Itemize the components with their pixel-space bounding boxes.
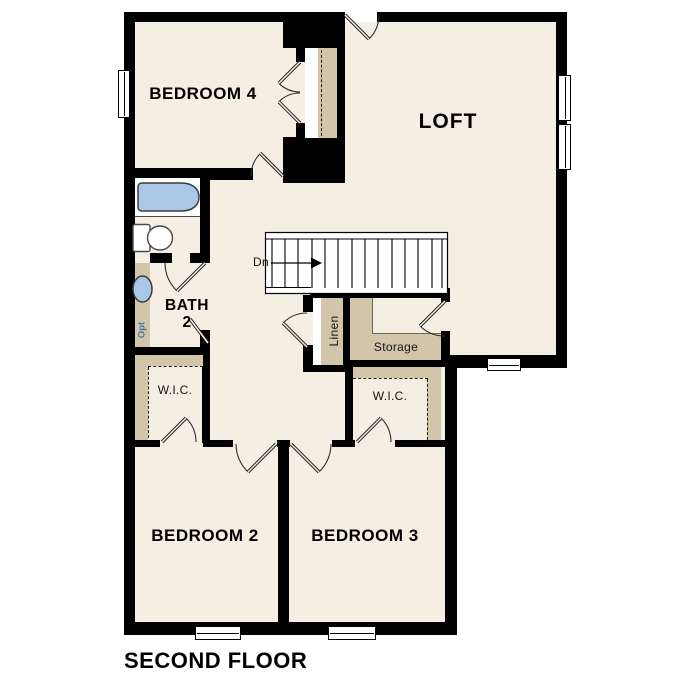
storage-shelf-edge [372,298,373,334]
wall-segment [337,48,345,138]
wic-right-rod [353,378,428,379]
wic-right-shelf [427,378,441,440]
wall-segment [190,253,210,263]
wic-right-rod [427,379,428,440]
wall-segment [124,347,210,355]
window [195,626,241,640]
wall-segment [283,137,345,183]
wic-left-shelf [135,366,148,440]
wall-segment [556,12,567,368]
page-title: SECOND FLOOR [124,648,307,674]
window-mullion [330,633,374,634]
linen-floor [313,298,321,365]
wall-segment [343,360,450,367]
label-storage: Storage [356,340,436,354]
wic-left-shelf [135,355,203,366]
window-mullion [197,633,239,634]
wall-segment [283,12,345,48]
wall-segment [150,253,172,263]
wic-left-rod [148,367,149,438]
wall-segment [303,295,313,312]
window-mullion [489,365,519,366]
label-stairs-dn: Dn [246,255,276,269]
label-loft: LOFT [388,110,508,133]
label-bedroom2: BEDROOM 2 [125,527,285,546]
label-bath2-line1: BATH [165,297,209,314]
window [487,358,521,371]
label-bath2-line2: 2 [182,314,191,331]
floor-plan: BEDROOM 4 LOFT BATH 2 BEDROOM 2 BEDROOM … [0,0,687,687]
wall-segment [203,440,233,447]
wic-right-shelf [353,367,441,378]
wall-segment [445,355,457,635]
label-bath2: BATH 2 [156,297,218,331]
wall-segment [441,288,450,302]
wall-segment [200,168,210,263]
closet-floor [305,48,318,138]
storage-shelf-edge [372,333,441,334]
label-wic-right: W.I.C. [360,389,420,403]
label-vanity-opt: Opt [137,315,149,346]
wall-segment [310,288,448,298]
window [328,626,376,640]
wic-left-rod [148,366,203,367]
window [558,75,571,121]
label-linen: Linen [327,304,341,358]
wall-segment [332,440,355,447]
wall-segment [124,622,457,635]
label-bedroom3: BEDROOM 3 [285,527,445,546]
wall-segment [296,123,305,138]
wall-segment [124,440,160,447]
closet-rod [321,50,322,136]
tub-niche [135,178,200,217]
label-wic-left: W.I.C. [145,383,205,397]
label-bedroom4: BEDROOM 4 [123,85,283,104]
window-mullion [565,77,566,119]
window [558,124,571,170]
wall-segment [345,360,353,443]
wall-segment [395,440,457,447]
wall-segment [296,48,305,62]
window-mullion [565,126,566,168]
wall-segment [377,12,567,22]
